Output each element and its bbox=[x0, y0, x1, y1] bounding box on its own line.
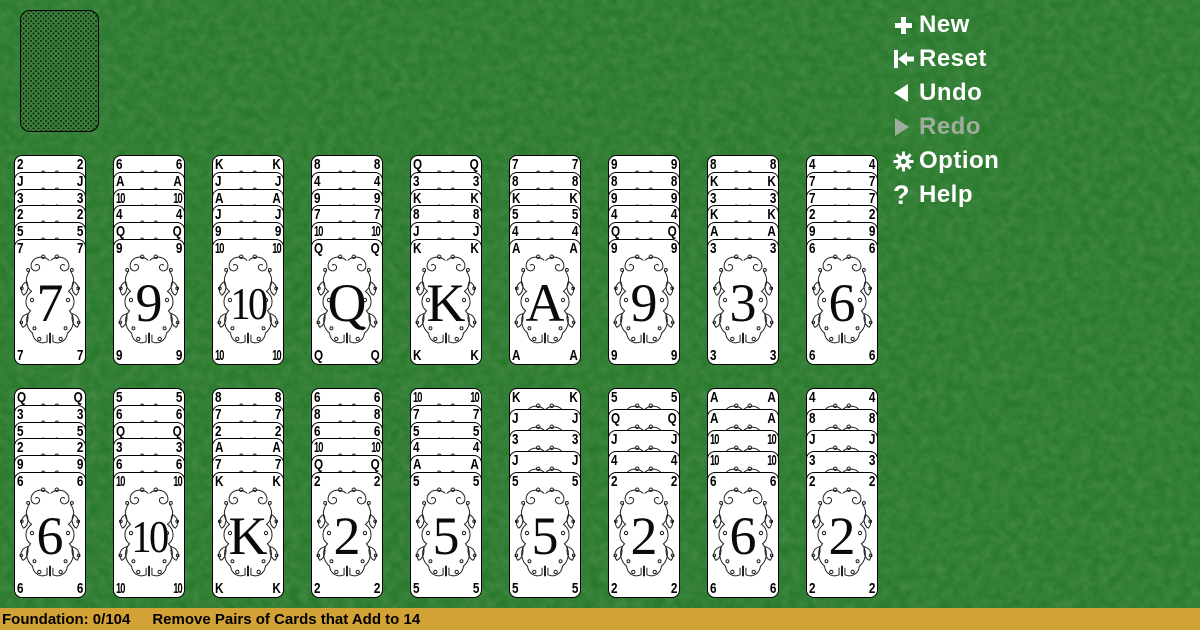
card-value: 9 bbox=[609, 240, 679, 364]
card-value: 7 bbox=[15, 240, 85, 364]
redo-label: Redo bbox=[919, 113, 981, 141]
reset-label: Reset bbox=[919, 45, 987, 73]
card-2[interactable]: 22222 bbox=[608, 472, 680, 598]
help-label: Help bbox=[919, 181, 973, 209]
card-6[interactable]: 66666 bbox=[806, 239, 878, 365]
card-value: 2 bbox=[807, 473, 877, 597]
card-value: K bbox=[213, 473, 283, 597]
card-Q[interactable]: QQQQQ bbox=[311, 239, 383, 365]
card-value: 2 bbox=[312, 473, 382, 597]
card-10[interactable]: 1010101010 bbox=[113, 472, 185, 598]
card-6[interactable]: 66666 bbox=[14, 472, 86, 598]
card-5[interactable]: 55555 bbox=[410, 472, 482, 598]
option-label: Option bbox=[919, 147, 999, 175]
tableau: 22222JJJJJ3333322222555557777766666AAAAA… bbox=[0, 0, 1200, 630]
card-value: 3 bbox=[708, 240, 778, 364]
card-K[interactable]: KKKKK bbox=[410, 239, 482, 365]
card-value: K bbox=[411, 240, 481, 364]
new-label: New bbox=[919, 11, 970, 39]
card-5[interactable]: 55555 bbox=[509, 472, 581, 598]
menu: New Reset Undo Redo bbox=[893, 8, 999, 212]
status-bar: Foundation: 0/104 Remove Pairs of Cards … bbox=[0, 608, 1200, 630]
reset-icon bbox=[893, 49, 919, 69]
card-K[interactable]: KKKKK bbox=[212, 472, 284, 598]
card-6[interactable]: 66666 bbox=[707, 472, 779, 598]
card-value: 6 bbox=[708, 473, 778, 597]
undo-label: Undo bbox=[919, 79, 982, 107]
reset-button[interactable]: Reset bbox=[893, 42, 999, 76]
question-icon: ? bbox=[893, 185, 919, 205]
card-7[interactable]: 77777 bbox=[14, 239, 86, 365]
card-value: 6 bbox=[807, 240, 877, 364]
card-value: 10 bbox=[217, 240, 279, 364]
option-button[interactable]: Option bbox=[893, 144, 999, 178]
card-2[interactable]: 22222 bbox=[311, 472, 383, 598]
game-hint-text: Remove Pairs of Cards that Add to 14 bbox=[152, 611, 420, 628]
undo-button[interactable]: Undo bbox=[893, 76, 999, 110]
help-button[interactable]: ? Help bbox=[893, 178, 999, 212]
card-10[interactable]: 1010101010 bbox=[212, 239, 284, 365]
card-value: Q bbox=[312, 240, 382, 364]
gear-icon bbox=[893, 151, 919, 172]
card-9[interactable]: 99999 bbox=[113, 239, 185, 365]
card-9[interactable]: 99999 bbox=[608, 239, 680, 365]
redo-icon bbox=[893, 117, 919, 137]
undo-icon bbox=[893, 83, 919, 103]
redo-button[interactable]: Redo bbox=[893, 110, 999, 144]
card-value: A bbox=[510, 240, 580, 364]
card-value: 9 bbox=[114, 240, 184, 364]
plus-icon bbox=[893, 15, 919, 35]
new-button[interactable]: New bbox=[893, 8, 999, 42]
card-value: 5 bbox=[411, 473, 481, 597]
card-value: 2 bbox=[609, 473, 679, 597]
card-A[interactable]: AAAAA bbox=[509, 239, 581, 365]
card-2[interactable]: 22222 bbox=[806, 472, 878, 598]
foundation-counter: Foundation: 0/104 bbox=[2, 611, 130, 628]
card-3[interactable]: 33333 bbox=[707, 239, 779, 365]
card-value: 10 bbox=[118, 473, 180, 597]
card-value: 5 bbox=[510, 473, 580, 597]
card-value: 6 bbox=[15, 473, 85, 597]
